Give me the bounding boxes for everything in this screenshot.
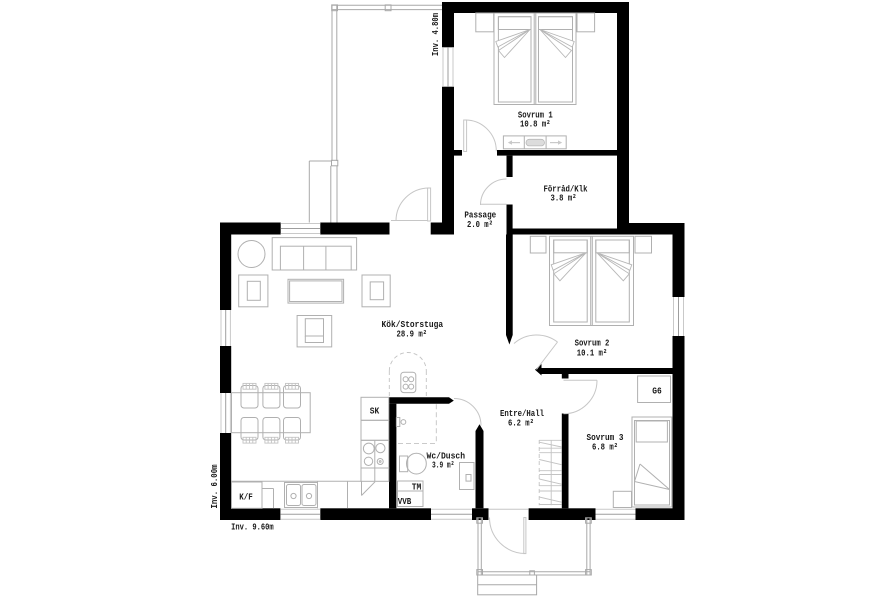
svg-text:3.8 m²: 3.8 m²: [551, 193, 577, 204]
svg-text:28.9 m²: 28.9 m²: [397, 329, 428, 340]
svg-text:3.9 m²: 3.9 m²: [432, 459, 454, 470]
svg-text:Inv. 9.60m: Inv. 9.60m: [231, 521, 274, 532]
svg-text:6.8 m²: 6.8 m²: [592, 441, 618, 452]
svg-text:Inv. 6.00m: Inv. 6.00m: [209, 464, 220, 508]
svg-text:Inv. 4.80m: Inv. 4.80m: [430, 13, 441, 56]
svg-text:10.8 m²: 10.8 m²: [520, 119, 551, 130]
svg-text:6.2 m²: 6.2 m²: [508, 418, 534, 429]
svg-text:10.1 m²: 10.1 m²: [577, 347, 608, 358]
svg-text:G6: G6: [652, 386, 662, 397]
svg-text:K/F: K/F: [239, 492, 253, 503]
svg-text:SK: SK: [370, 406, 380, 417]
svg-text:TM: TM: [412, 482, 422, 493]
svg-text:2.0 m²: 2.0 m²: [467, 219, 493, 230]
svg-text:VVB: VVB: [398, 496, 412, 507]
